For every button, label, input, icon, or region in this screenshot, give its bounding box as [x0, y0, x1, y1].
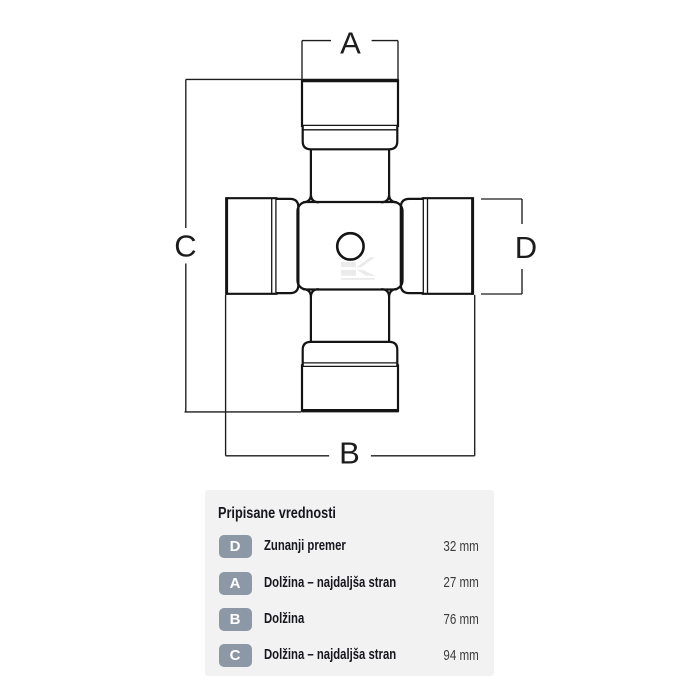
svg-text:B: B	[339, 436, 360, 471]
svg-text:C: C	[174, 228, 196, 263]
svg-text:D: D	[515, 230, 537, 265]
svg-text:A: A	[340, 25, 361, 60]
